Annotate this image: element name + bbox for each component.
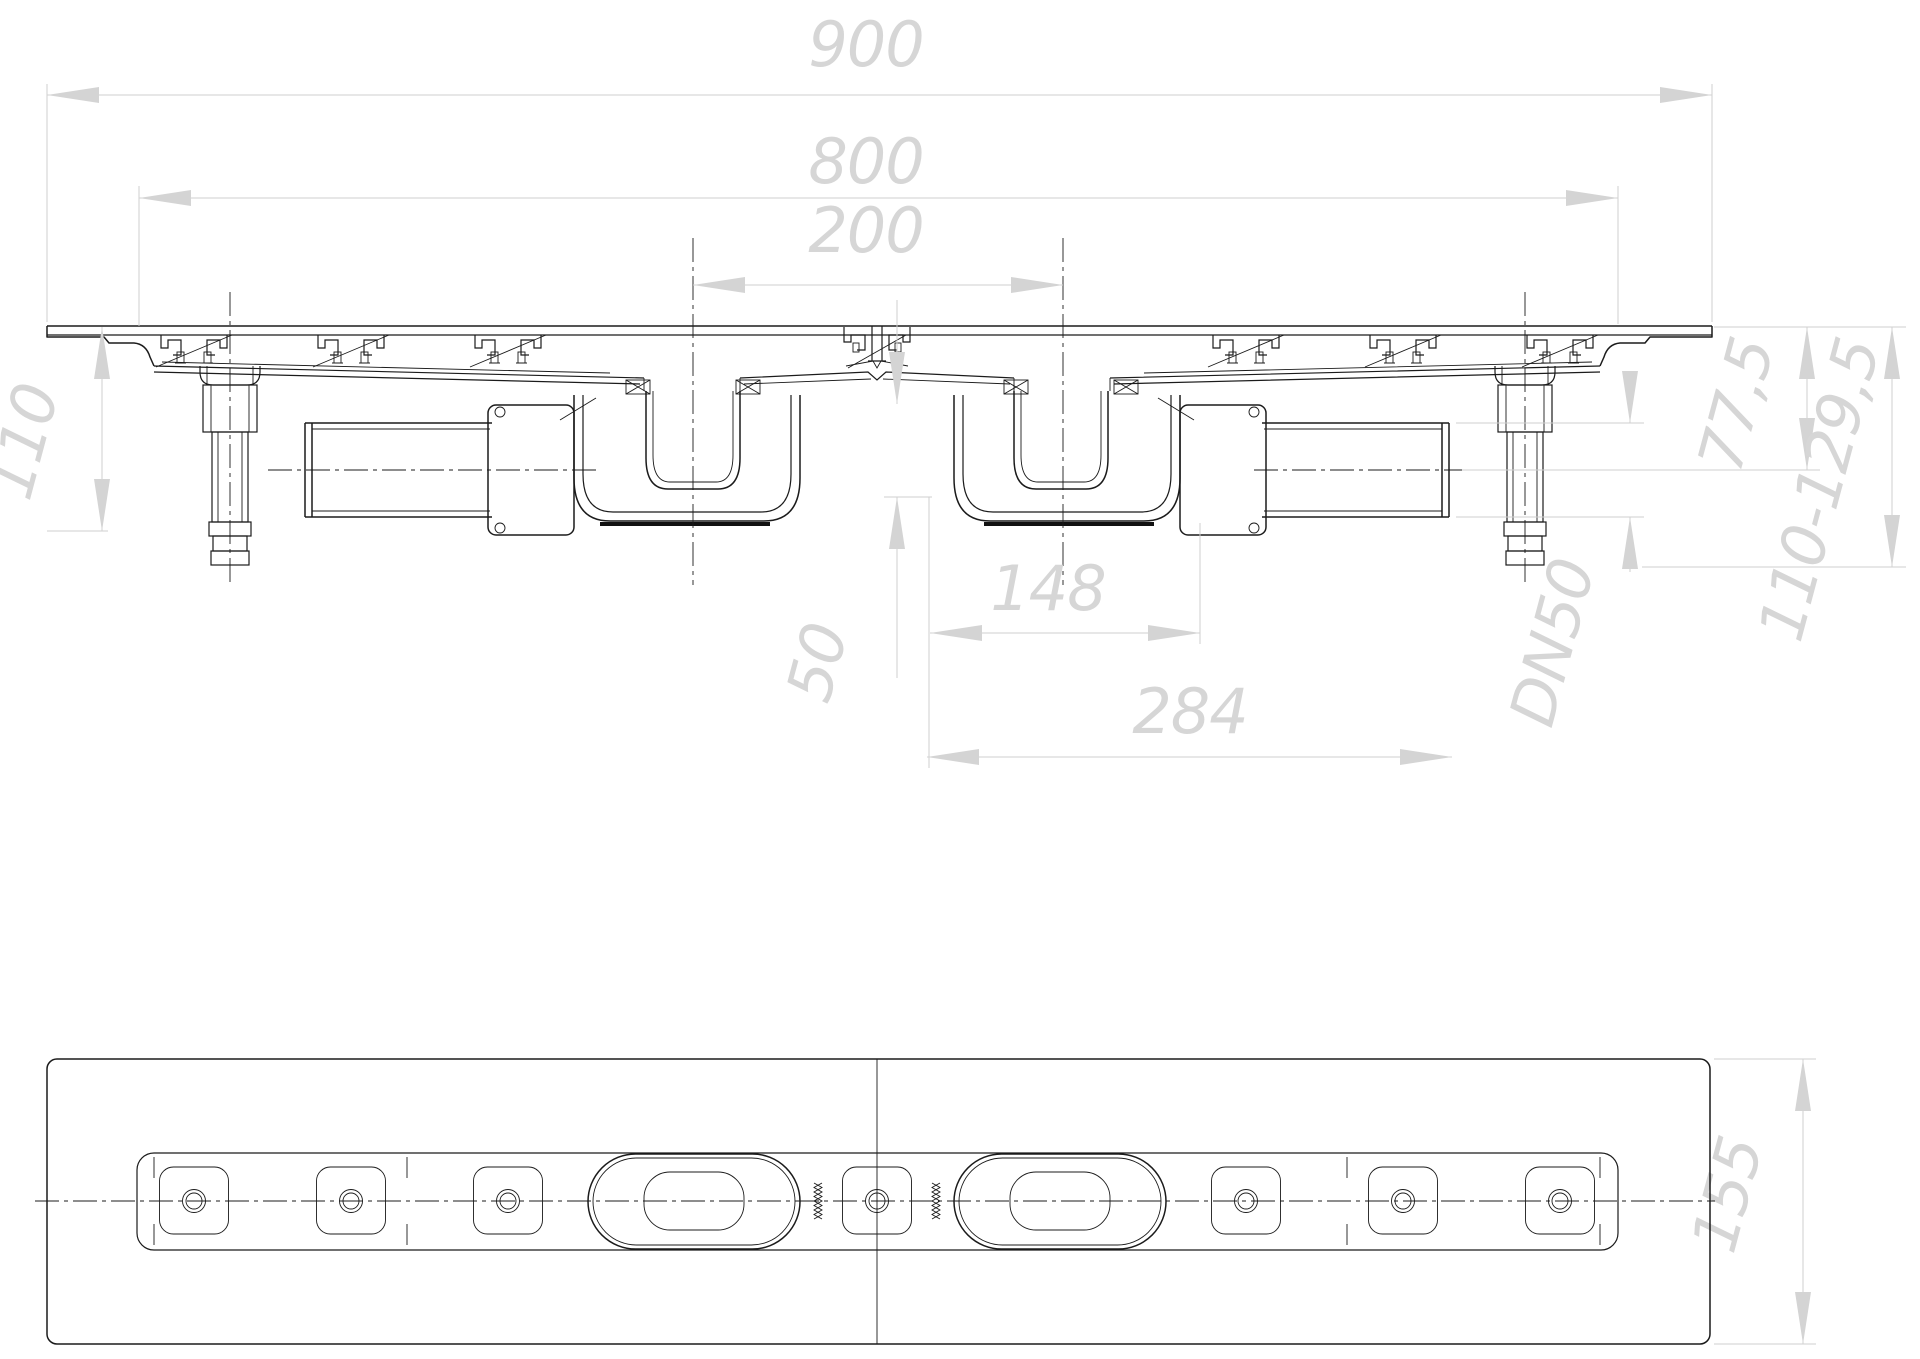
- dim-label-body-length: 800: [808, 125, 923, 198]
- channel-body: [47, 326, 1712, 391]
- drawing-sheet: 900 800 200 110 50: [0, 0, 1920, 1359]
- base-outline: [47, 1059, 1710, 1344]
- dim-label-seal-depth: 50: [772, 616, 862, 709]
- clip-pair: [1208, 335, 1284, 367]
- drain-opening: [588, 1154, 800, 1249]
- dim-base-depth: 155: [1677, 1059, 1811, 1344]
- screw-recess: [1369, 1167, 1438, 1234]
- clip-pair: [313, 335, 389, 367]
- dim-label-base-depth: 155: [1677, 1129, 1777, 1259]
- dim-install-height: 110: [0, 327, 110, 531]
- dim-outlet-spacing: 200: [693, 194, 1063, 293]
- dim-label-outlet-spacing: 200: [808, 194, 923, 267]
- bottom-view: [35, 1059, 1715, 1344]
- centerlines: [230, 238, 1525, 587]
- dimensions: 900 800 200 110 50: [0, 8, 1906, 1344]
- dim-label-trap-assembly-length: 284: [1132, 675, 1247, 748]
- screw-recess: [1526, 1167, 1595, 1234]
- dim-label-trap-width: 148: [990, 552, 1105, 625]
- dim-trap-assembly-length: 284: [927, 675, 1452, 765]
- dim-overall-length: 900: [47, 8, 1712, 103]
- drain-opening: [954, 1154, 1166, 1249]
- screw-recess: [474, 1167, 543, 1234]
- dim-outlet-diameter: DN50: [1495, 371, 1638, 734]
- dim-label-top-to-pipe-axis: 77,5: [1684, 330, 1789, 478]
- screw-recess: [317, 1167, 386, 1234]
- dim-label-overall-length: 900: [808, 8, 923, 81]
- section-view: [47, 238, 1712, 587]
- dim-trap-width: 148: [930, 552, 1200, 641]
- dim-label-install-height: 110: [0, 376, 73, 506]
- clip-pair: [1365, 335, 1441, 367]
- screw-recess: [160, 1167, 229, 1234]
- technical-drawing-canvas: 900 800 200 110 50: [0, 0, 1920, 1359]
- screw-recess: [1212, 1167, 1281, 1234]
- clip-pair: [156, 335, 232, 367]
- left-trap: [560, 380, 800, 524]
- clip-pair: [470, 335, 546, 367]
- right-trap: [954, 380, 1194, 524]
- dim-label-outlet-diameter: DN50: [1495, 551, 1609, 733]
